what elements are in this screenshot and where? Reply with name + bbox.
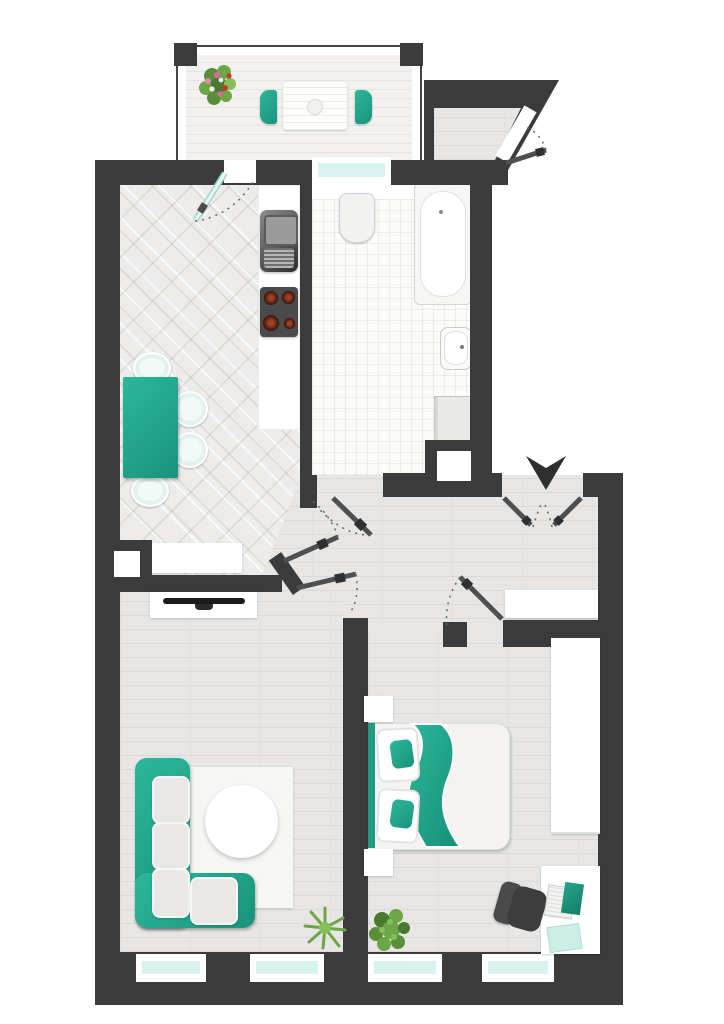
bathtub-basin — [420, 191, 466, 297]
living-window-2-glass — [256, 961, 318, 974]
kitchen-sideboard — [150, 543, 242, 573]
stove-burner-4 — [284, 318, 295, 329]
wall-bedroom-top-jamb — [443, 622, 467, 647]
wall-bathroom-left — [300, 185, 312, 475]
sofa-cushion-1 — [152, 776, 190, 824]
kitchen-sink-basin — [264, 215, 298, 246]
bathtub-drain — [439, 210, 443, 214]
balcony-corner-post-right — [400, 43, 423, 66]
nightstand-top — [364, 696, 393, 722]
bathroom-window-glass — [318, 163, 385, 177]
balcony-chair-right — [355, 90, 372, 124]
dining-table — [123, 377, 178, 478]
living-window-1-glass — [142, 961, 200, 974]
sofa-cushion-2 — [152, 822, 190, 870]
wall-right — [598, 473, 623, 1005]
washbasin-tap — [460, 345, 464, 349]
balcony-table-center — [307, 99, 323, 115]
desk-notepad — [546, 923, 582, 953]
tv-stand — [195, 604, 213, 610]
dining-chair-bottom — [131, 475, 169, 507]
wall-living-bedroom-divider — [343, 618, 368, 952]
balcony-chair-left — [260, 90, 277, 124]
nightstand-bottom — [364, 849, 393, 876]
bed-cushion-2 — [389, 799, 415, 830]
wall-bathroom-left-post — [300, 475, 317, 508]
washbasin-bowl — [444, 331, 468, 365]
hallway-wardrobe — [505, 590, 598, 618]
kitchen-sink-drainer — [264, 248, 294, 268]
bedroom-plant-icon — [364, 904, 416, 956]
living-plant-icon — [301, 904, 349, 952]
bedroom-window-2-glass — [488, 961, 548, 974]
wall-top — [95, 160, 492, 185]
washing-machine — [434, 396, 474, 445]
stove-burner-1 — [264, 291, 278, 305]
sofa-cushion-corner — [152, 868, 190, 918]
vestibule-corner-fill — [490, 160, 508, 185]
stove-burner-2 — [282, 291, 295, 304]
stove-burner-3 — [263, 315, 279, 331]
sofa-cushion-3 — [190, 877, 238, 925]
toilet — [339, 193, 375, 243]
balcony-door-opening — [224, 160, 256, 183]
floor-plan — [0, 0, 724, 1024]
bathroom-shaft — [437, 451, 471, 481]
bedroom-window-1-glass — [374, 961, 436, 974]
bedroom-wardrobe — [551, 638, 600, 834]
wall-entrance-post-right — [583, 473, 623, 497]
bed-cushion-1 — [389, 739, 415, 770]
flower-pot-icon — [192, 58, 244, 110]
kitchen-shaft — [114, 551, 140, 577]
coffee-table — [205, 785, 278, 858]
